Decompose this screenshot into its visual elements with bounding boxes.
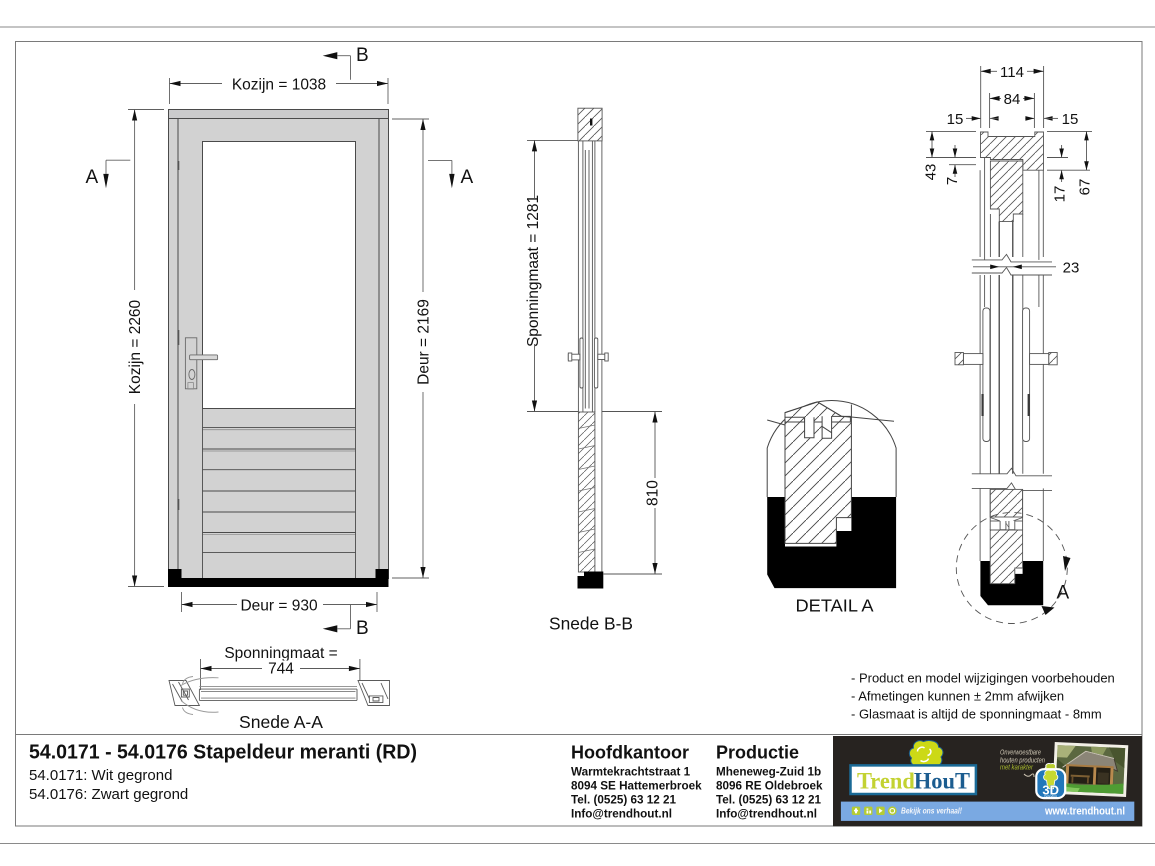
svg-text:Kozijn = 1038: Kozijn = 1038 [232,77,326,94]
svg-text:8094 SE Hattemerbroek: 8094 SE Hattemerbroek [571,780,702,793]
svg-text:810: 810 [645,480,662,506]
svg-text:744: 744 [268,661,294,678]
svg-text:Snede A-A: Snede A-A [239,712,323,732]
svg-text:A: A [86,167,99,188]
svg-text:Snede B-B: Snede B-B [549,614,633,634]
svg-text:Info@trendhout.nl: Info@trendhout.nl [716,808,817,821]
svg-text:B: B [356,618,369,639]
svg-text:B: B [356,45,369,66]
svg-text:15: 15 [947,111,964,128]
svg-text:- Product en model wijzigingen: - Product en model wijzigingen voorbehou… [851,671,1115,686]
svg-text:54.0176: Zwart gegrond: 54.0176: Zwart gegrond [29,786,188,803]
svg-text:A: A [1057,583,1070,604]
svg-text:8096 RE Oldebroek: 8096 RE Oldebroek [716,780,823,793]
svg-text:Sponningmaat = 1281: Sponningmaat = 1281 [525,195,542,347]
svg-text:7: 7 [944,177,961,185]
svg-text:15: 15 [1062,111,1079,128]
svg-text:- Afmetingen kunnen ± 2mm afwi: - Afmetingen kunnen ± 2mm afwijken [851,689,1064,704]
svg-text:Tel. (0525) 63 12 21: Tel. (0525) 63 12 21 [716,794,822,807]
svg-text:Info@trendhout.nl: Info@trendhout.nl [571,808,672,821]
svg-text:23: 23 [1063,260,1080,277]
svg-text:beleving: beleving [1045,794,1057,798]
svg-text:DETAIL A: DETAIL A [796,596,874,616]
svg-text:- Glasmaat is altijd de sponni: - Glasmaat is altijd de sponningmaat - 8… [851,707,1102,722]
svg-text:Bekijk ons verhaal!: Bekijk ons verhaal! [901,806,962,816]
svg-text:A: A [461,167,474,188]
svg-text:www.trendhout.nl: www.trendhout.nl [1044,806,1125,818]
svg-text:Deur = 2169: Deur = 2169 [416,299,433,385]
svg-text:TrendHouT: TrendHouT [857,769,970,794]
svg-text:84: 84 [1004,91,1021,108]
svg-text:Productie: Productie [716,743,799,763]
svg-text:Deur = 930: Deur = 930 [240,598,318,615]
svg-text:Sponningmaat =: Sponningmaat = [224,645,337,662]
svg-text:met karakter: met karakter [1000,763,1033,772]
svg-text:114: 114 [1000,64,1024,81]
svg-text:67: 67 [1077,179,1094,196]
svg-text:Kozijn = 2260: Kozijn = 2260 [127,299,144,394]
svg-text:Hoofdkantoor: Hoofdkantoor [571,743,689,763]
svg-text:54.0171: Wit gegrond: 54.0171: Wit gegrond [29,767,172,784]
svg-text:17: 17 [1052,186,1069,203]
svg-text:Warmtekrachtstraat 1: Warmtekrachtstraat 1 [571,766,691,779]
svg-text:43: 43 [923,164,940,181]
svg-text:Tel. (0525) 63 12 21: Tel. (0525) 63 12 21 [571,794,677,807]
svg-text:Mheneweg-Zuid 1b: Mheneweg-Zuid 1b [716,766,821,779]
svg-text:54.0171 - 54.0176 Stapeldeur m: 54.0171 - 54.0176 Stapeldeur meranti (RD… [29,742,417,764]
